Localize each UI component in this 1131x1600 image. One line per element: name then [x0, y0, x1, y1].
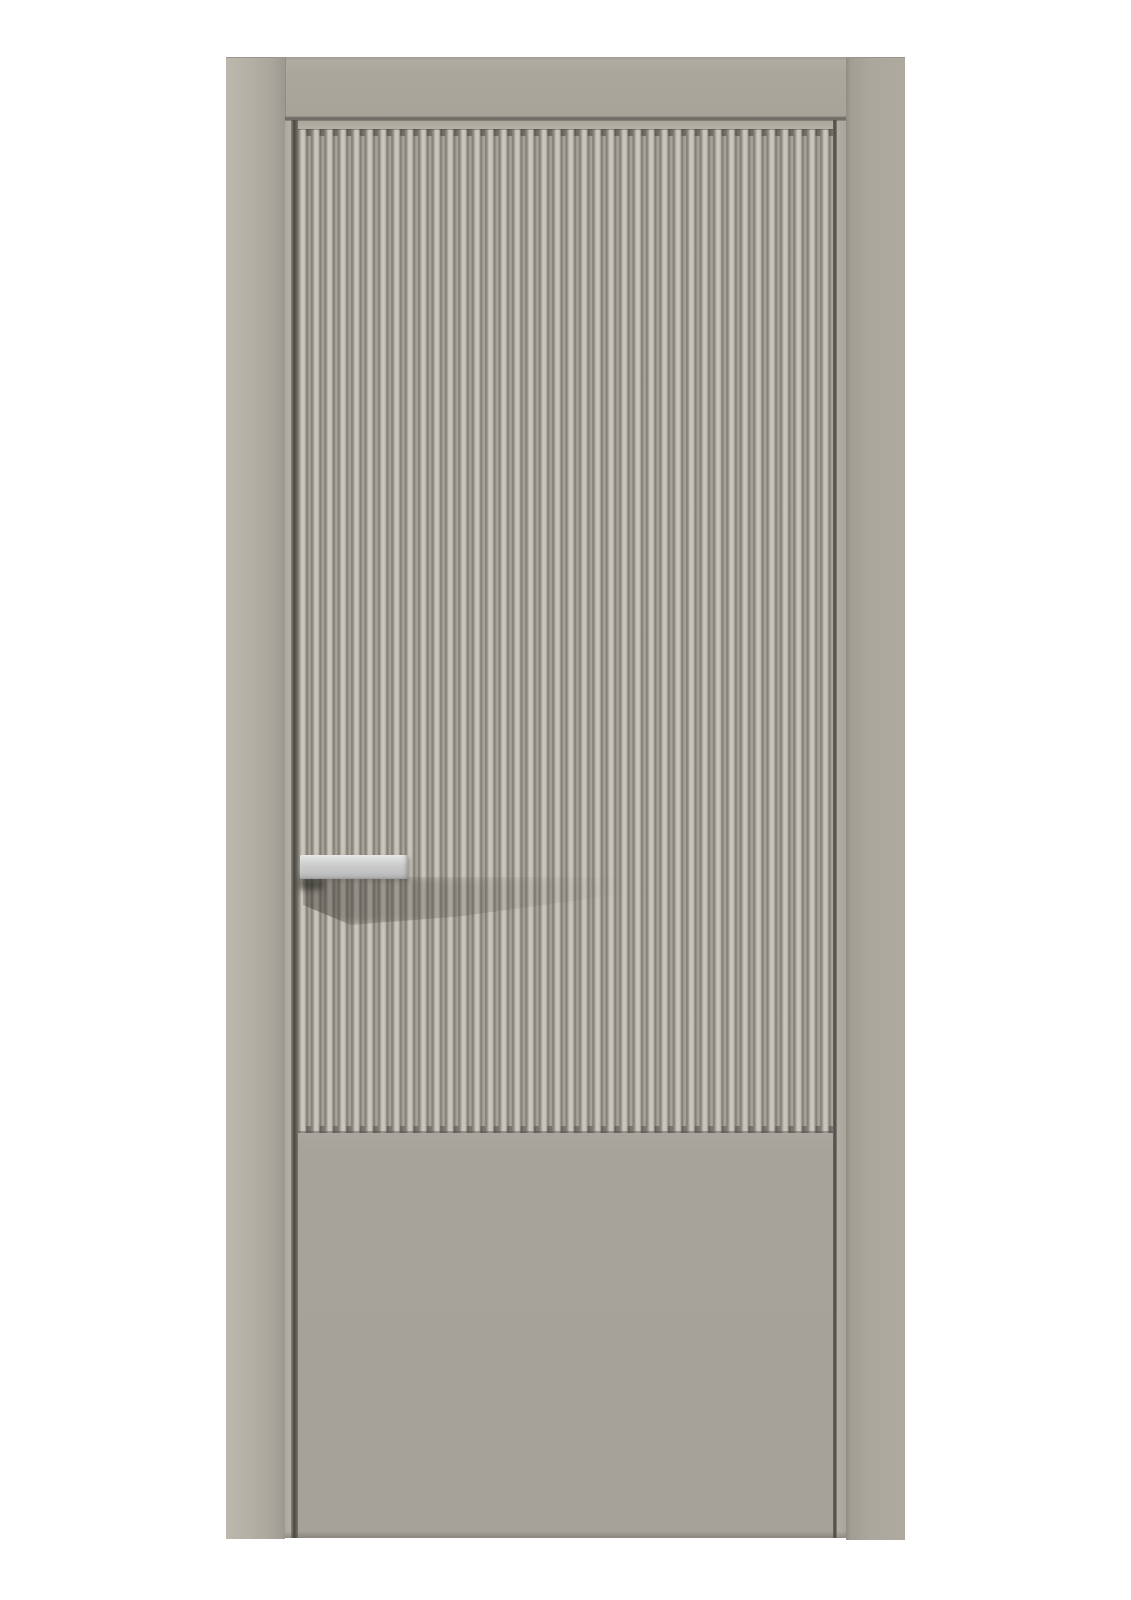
- door-leaf: [285, 120, 846, 1538]
- door-frame-right-casing: [846, 57, 905, 1540]
- leaf-right-edge-strip: [837, 120, 846, 1538]
- fluted-panel: [298, 129, 833, 1133]
- door-leaf-face: [298, 120, 833, 1538]
- flute-bottom-groove: [298, 1126, 833, 1133]
- leaf-left-gap-shadow: [291, 120, 298, 1538]
- door-frame-head-casing: [285, 57, 846, 120]
- leaf-top-rail: [298, 120, 833, 129]
- flute-top-groove: [298, 129, 833, 136]
- door-frame-left-casing: [226, 57, 285, 1539]
- leaf-bottom-shade: [285, 1531, 846, 1538]
- lower-flat-panel: [298, 1133, 833, 1538]
- door-handle: [300, 855, 408, 879]
- head-casing-shadow-line: [285, 116, 846, 121]
- door-product-photo: [0, 0, 1131, 1600]
